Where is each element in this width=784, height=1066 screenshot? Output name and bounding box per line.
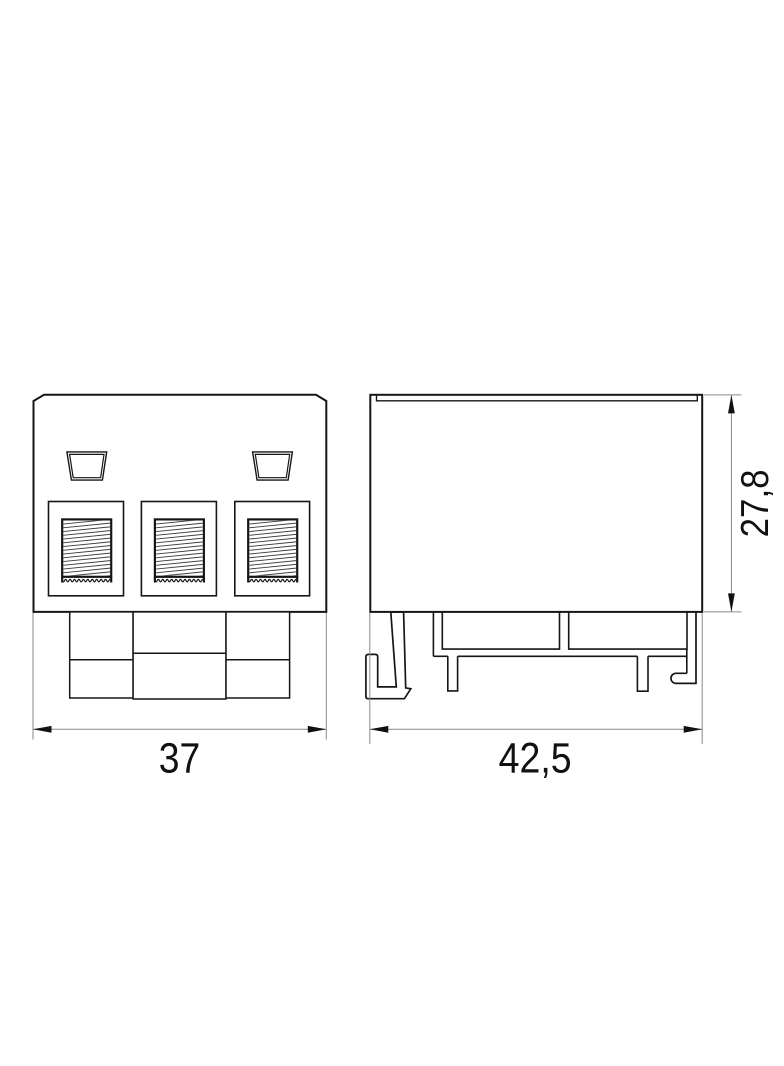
svg-text:27,8: 27,8	[734, 469, 777, 537]
svg-text:37: 37	[159, 736, 201, 783]
svg-text:42,5: 42,5	[499, 736, 572, 783]
